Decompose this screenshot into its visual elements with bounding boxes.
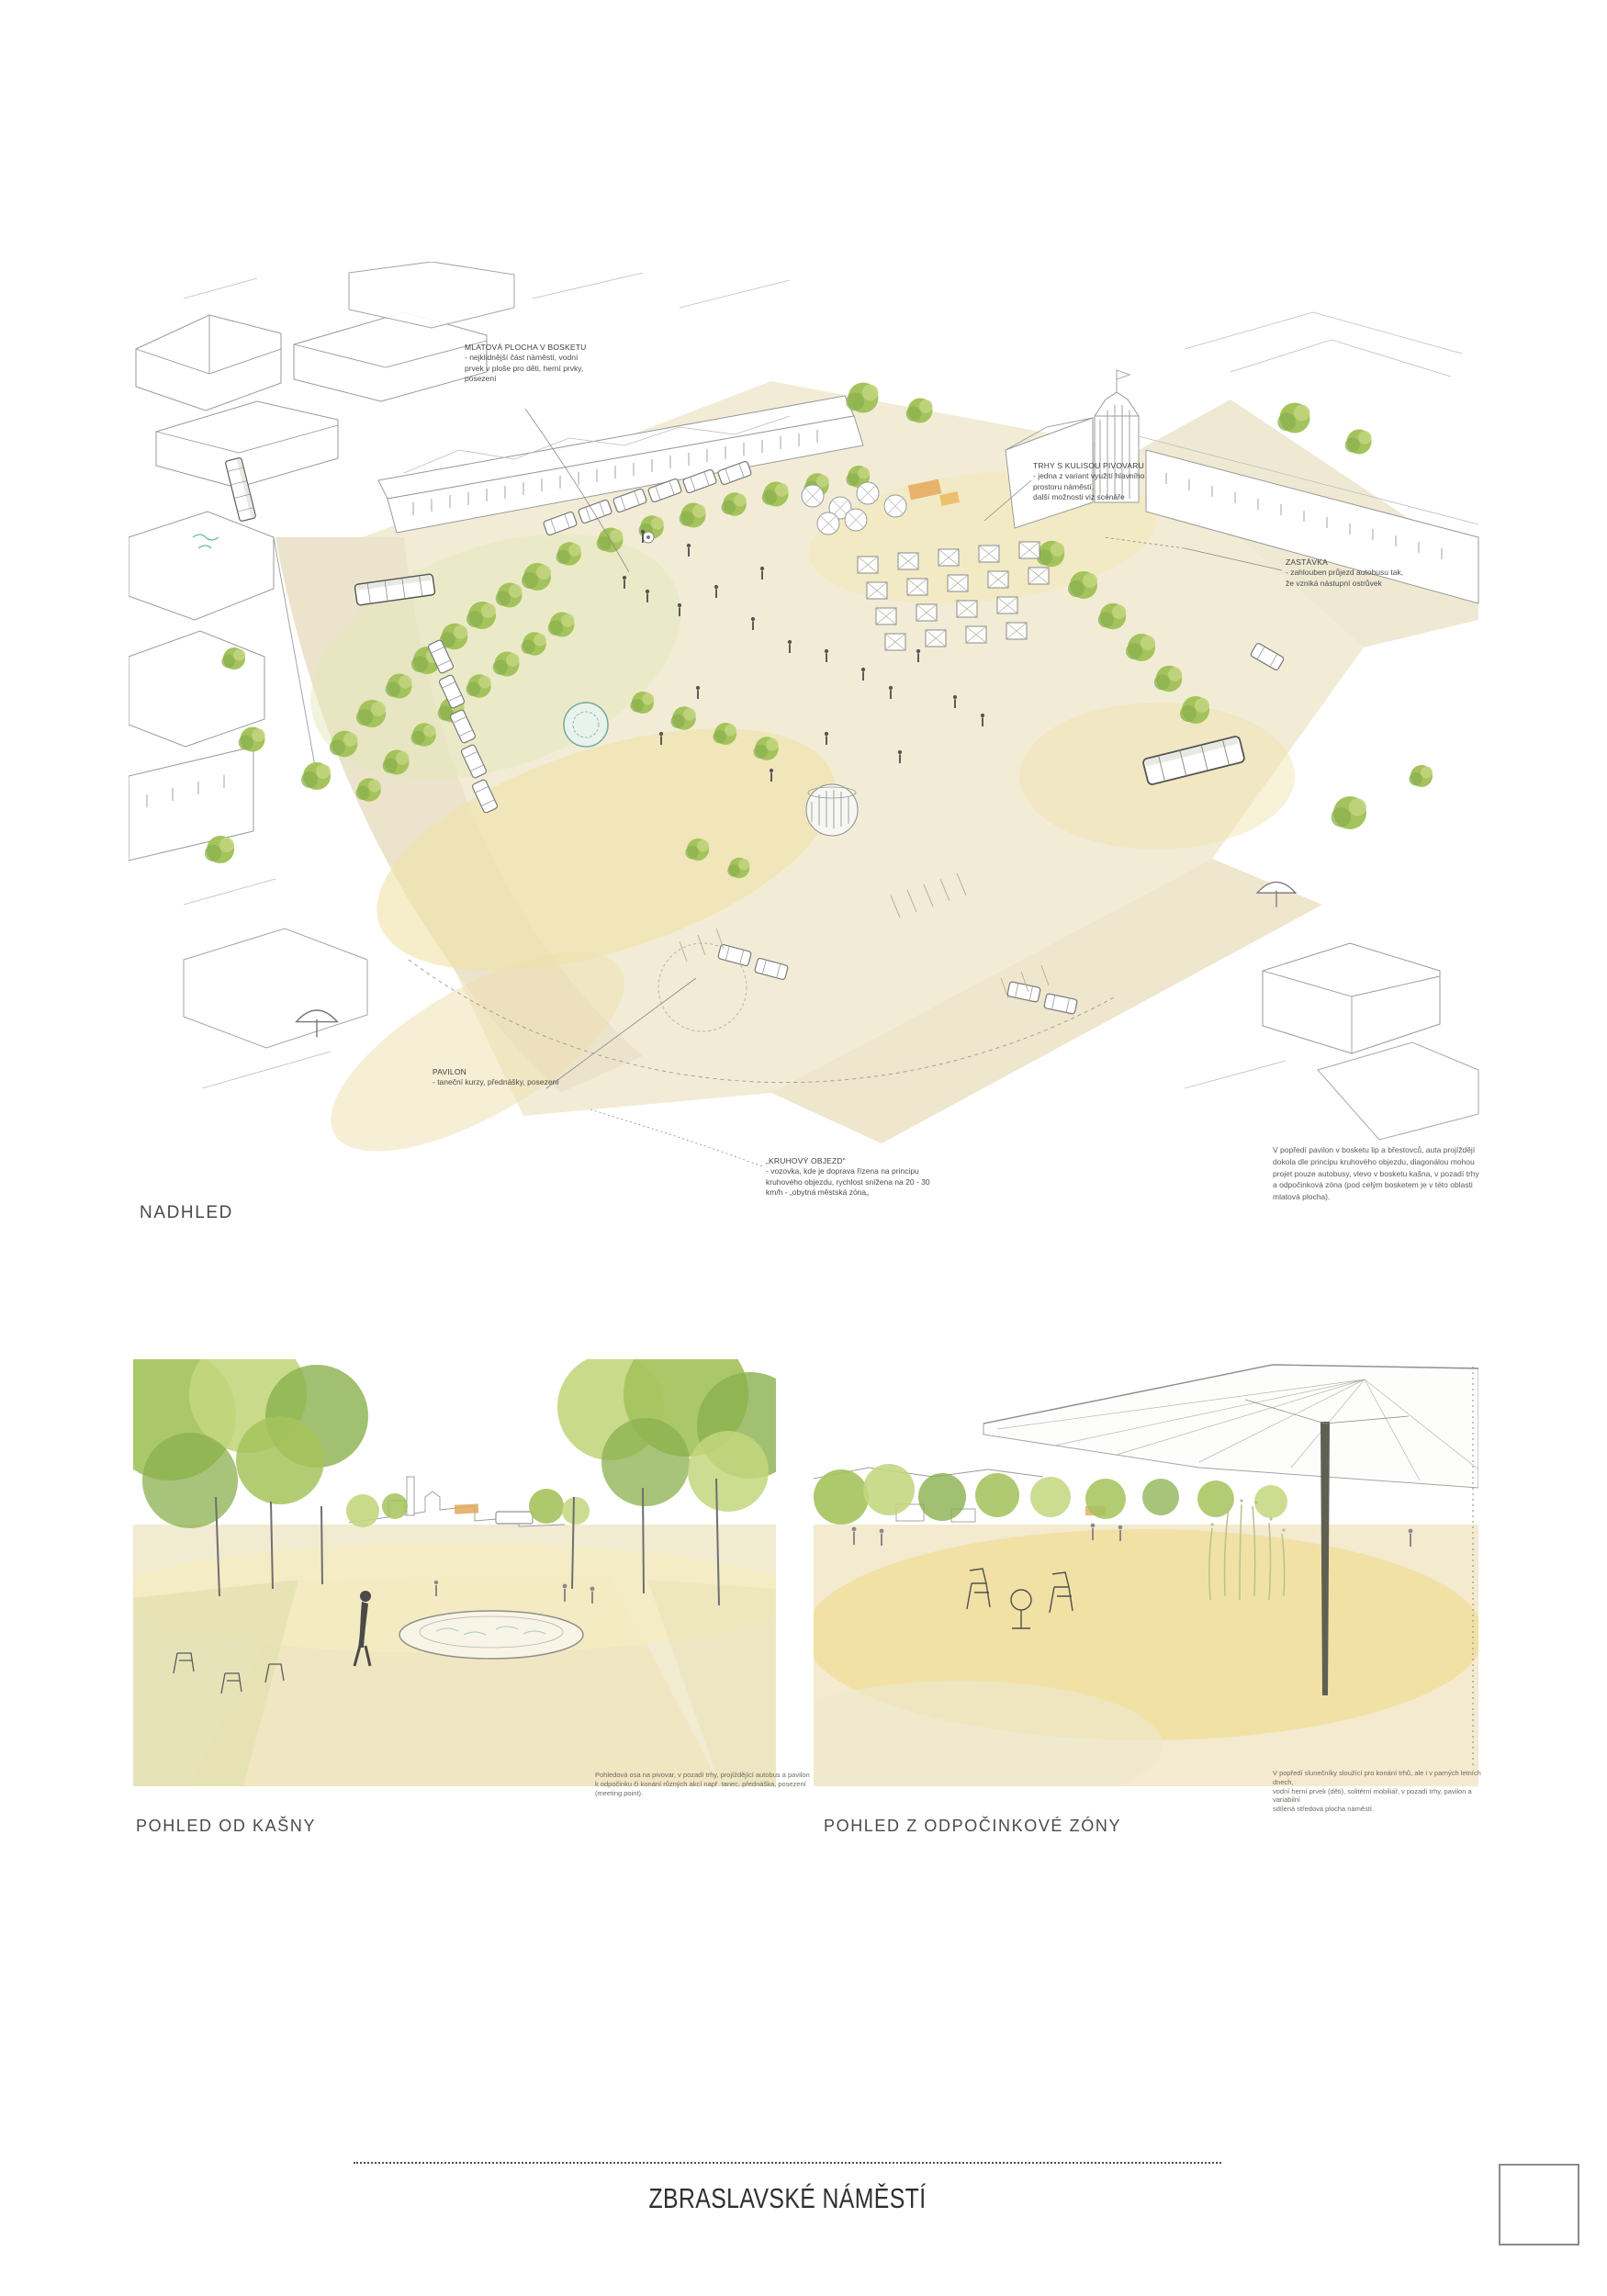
aerial-watercolor-drawing — [129, 262, 1488, 1189]
aerial-view-figure: MLATOVÁ PLOCHA V BOSKETU- nejklidnější č… — [129, 262, 1488, 1189]
annotation-title: TRHY S KULISOU PIVOVARU — [1033, 461, 1217, 471]
presentation-board: MLATOVÁ PLOCHA V BOSKETU- nejklidnější č… — [0, 0, 1607, 2296]
fountain-view-label: POHLED OD KAŠNY — [136, 1817, 316, 1836]
statue — [643, 532, 654, 543]
background-foliage — [814, 1464, 1287, 1525]
annotation-body: - zahlouben průjezd autobusu tak, že vzn… — [1286, 568, 1403, 587]
fountain-basin — [399, 1611, 583, 1659]
aerial-annotation-mlatova: MLATOVÁ PLOCHA V BOSKETU- nejklidnější č… — [465, 332, 639, 384]
annotation-body: - jedna z variant využití hlavního prost… — [1033, 471, 1144, 501]
rest-zone-view-caption: V popředí slunečníky sloužící pro konání… — [1273, 1769, 1493, 1814]
foliage-right — [557, 1359, 776, 1512]
board-title: ZBRASLAVSKÉ NÁMĚSTÍ — [441, 2182, 1135, 2215]
fountain-view-drawing — [133, 1359, 776, 1786]
annotation-body: - vozovka, kde je doprava řízena na prin… — [766, 1166, 930, 1196]
annotation-title: MLATOVÁ PLOCHA V BOSKETU — [465, 343, 639, 353]
rest-zone-view-figure — [814, 1359, 1478, 1786]
annotation-body: - taneční kurzy, přednášky, posezení — [433, 1077, 559, 1086]
aerial-description-paragraph: V popředí pavilon v bosketu lip a břesto… — [1273, 1144, 1482, 1203]
annotation-title: „KRUHOVÝ OBJEZD“ — [766, 1156, 1051, 1166]
rest-zone-view-label: POHLED Z ODPOČINKOVÉ ZÓNY — [824, 1817, 1121, 1836]
fountain — [564, 703, 608, 747]
aerial-annotation-pavilon: PAVILON- taneční kurzy, přednášky, posez… — [433, 1057, 644, 1088]
round-pavilion — [806, 784, 858, 836]
annotation-body: - nejklidnější část náměstí, vodní prvek… — [465, 353, 583, 382]
rest-zone-view-drawing — [814, 1359, 1478, 1786]
aerial-annotation-trhy: TRHY S KULISOU PIVOVARU- jedna z variant… — [1033, 451, 1217, 502]
footer-page-marker — [1499, 2164, 1579, 2245]
foliage-left — [133, 1359, 368, 1528]
footer-dotted-divider — [354, 2162, 1221, 2164]
annotation-title: ZASTÁVKA — [1286, 557, 1478, 568]
aerial-view-label: NADHLED — [140, 1203, 233, 1223]
fountain-view-figure — [133, 1359, 776, 1786]
fountain-view-caption: Pohledová osa na pivovar, v pozadí trhy,… — [595, 1771, 811, 1797]
aerial-annotation-kruhovy: „KRUHOVÝ OBJEZD“- vozovka, kde je doprav… — [766, 1146, 1051, 1198]
aerial-annotation-zastavka: ZASTÁVKA- zahlouben průjezd autobusu tak… — [1286, 547, 1478, 589]
canopy — [983, 1365, 1478, 1488]
annotation-title: PAVILON — [433, 1067, 644, 1077]
